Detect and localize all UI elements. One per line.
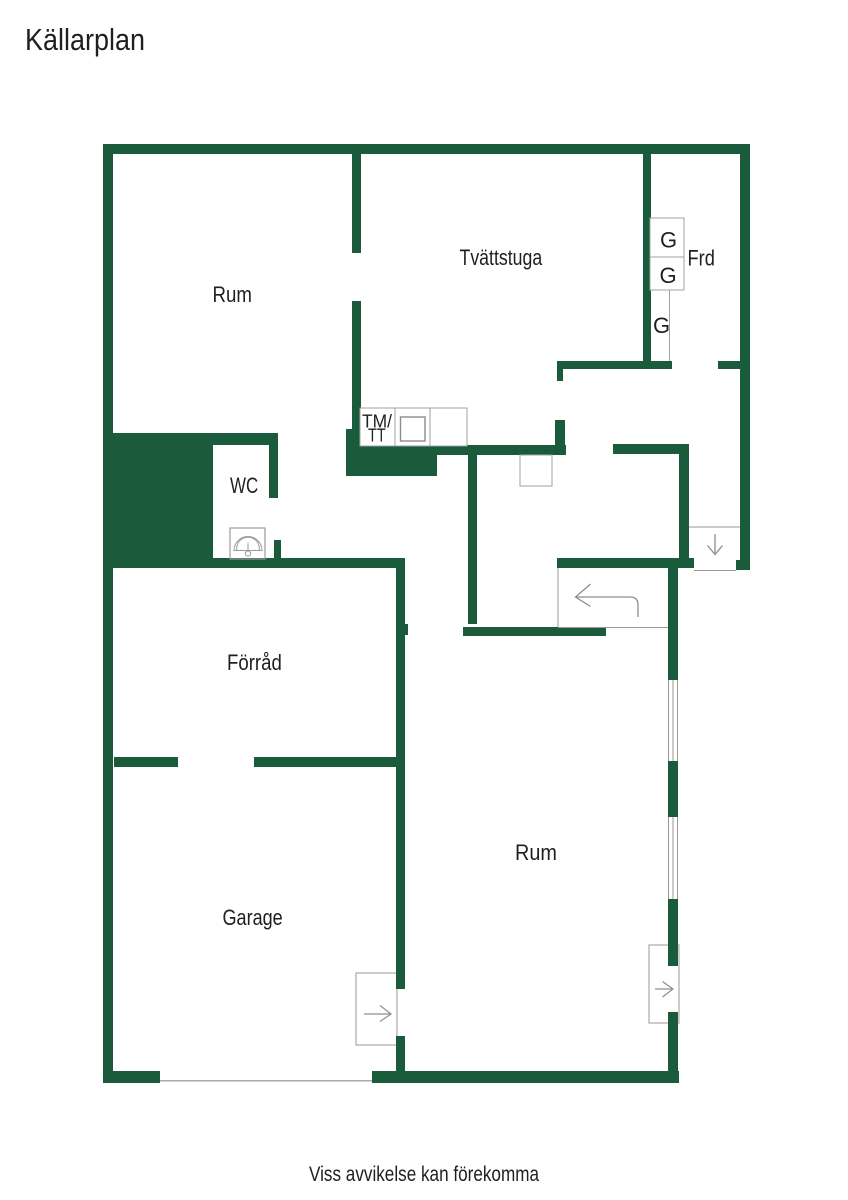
svg-text:Tvättstuga: Tvättstuga [460,245,543,270]
svg-text:Rum: Rum [213,282,252,307]
svg-text:Viss avvikelse kan förekomma: Viss avvikelse kan förekomma [309,1162,539,1186]
svg-text:G: G [660,228,677,253]
svg-text:Förråd: Förråd [227,650,282,675]
svg-text:G: G [653,313,670,338]
svg-text:Frd: Frd [688,246,715,271]
svg-text:TT: TT [368,426,386,446]
svg-text:Källarplan: Källarplan [25,22,145,57]
svg-text:G: G [659,263,676,288]
svg-text:WC: WC [230,473,258,498]
svg-text:Garage: Garage [223,905,283,930]
svg-text:Rum: Rum [515,840,557,865]
